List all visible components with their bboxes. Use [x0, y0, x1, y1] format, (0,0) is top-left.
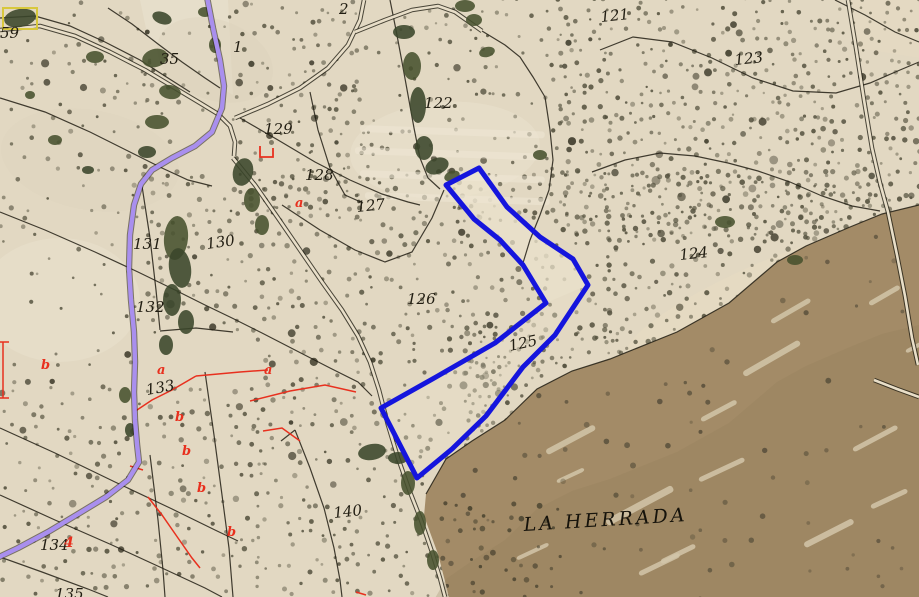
- parcel-label-132: 132: [136, 298, 165, 316]
- subparcel-label-a: a: [264, 363, 272, 378]
- subparcel-label-a: a: [157, 363, 165, 378]
- parcel-label-121: 121: [600, 5, 630, 26]
- parcel-label-126: 126: [407, 290, 436, 308]
- parcel-label-135: 135: [55, 585, 84, 597]
- parcel-label-35: 35: [160, 50, 179, 68]
- parcel-label-122: 122: [424, 94, 453, 112]
- parcel-label-123: 123: [734, 48, 764, 69]
- parcel-label-124: 124: [679, 243, 709, 264]
- parcel-label-131: 131: [133, 235, 162, 253]
- parcel-label-140: 140: [333, 501, 364, 522]
- subparcel-label-b: b: [41, 358, 50, 373]
- parcel-label-1: 1: [233, 38, 243, 56]
- map-viewport[interactable]: 5935121211221231241251261271281291301311…: [0, 0, 919, 597]
- subparcel-label-b: b: [182, 444, 191, 459]
- parcel-label-59: 59: [0, 24, 20, 42]
- parcel-label-128: 128: [305, 166, 334, 184]
- subparcel-label-b: b: [175, 410, 184, 425]
- subparcel-label-4: 4: [64, 535, 74, 551]
- subparcel-label-b: b: [227, 525, 236, 540]
- parcel-label-129: 129: [264, 120, 293, 138]
- parcel-label-127: 127: [356, 195, 387, 216]
- subparcel-label-a: a: [295, 196, 303, 211]
- aerial-map-canvas[interactable]: 5935121211221231241251261271281291301311…: [0, 0, 919, 597]
- subparcel-label-b: b: [197, 481, 206, 496]
- parcel-label-2: 2: [338, 0, 349, 18]
